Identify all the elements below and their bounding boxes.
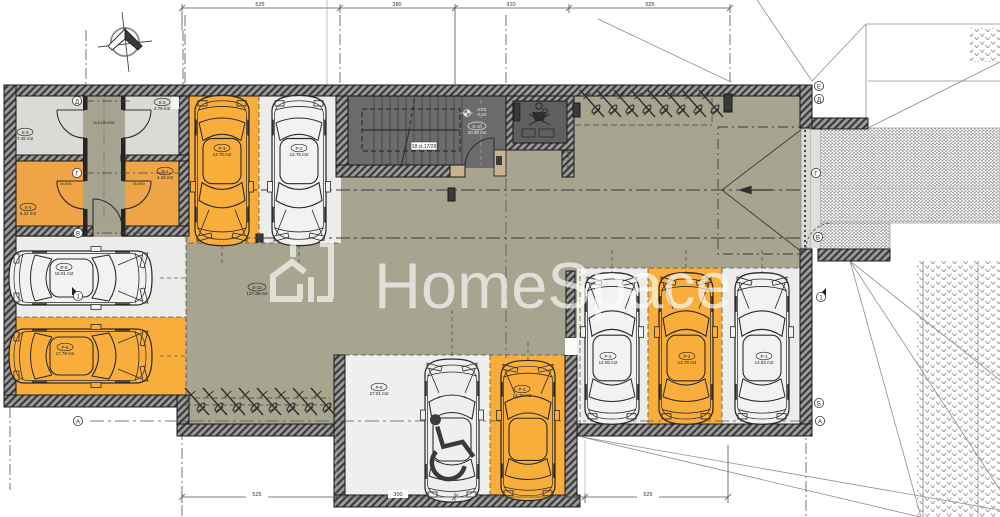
svg-text:310: 310 xyxy=(506,2,515,8)
svg-text:525: 525 xyxy=(255,2,264,8)
svg-text:P-1: P-1 xyxy=(760,354,768,359)
svg-text:P-8: P-8 xyxy=(375,385,383,390)
svg-text:525: 525 xyxy=(645,2,654,8)
svg-text:M-E90: M-E90 xyxy=(60,182,71,186)
svg-text:14.83 m2: 14.83 m2 xyxy=(755,360,774,365)
svg-text:Д: Д xyxy=(75,100,79,106)
svg-text:15.01 m2: 15.01 m2 xyxy=(55,271,74,276)
svg-text:P-6: P-6 xyxy=(60,265,68,270)
svg-text:P-2: P-2 xyxy=(604,354,612,359)
svg-text:13.75 m2: 13.75 m2 xyxy=(290,152,309,157)
svg-text:S-1: S-1 xyxy=(161,169,169,174)
svg-text:S-12: S-12 xyxy=(252,285,262,290)
svg-text:13.75 m2: 13.75 m2 xyxy=(213,152,232,157)
svg-text:S-4: S-4 xyxy=(24,205,32,210)
svg-text:14.79 m2: 14.79 m2 xyxy=(513,393,532,398)
svg-text:300: 300 xyxy=(393,492,402,498)
svg-text:4.79 m2: 4.79 m2 xyxy=(154,106,171,111)
svg-text:Е: Е xyxy=(817,85,821,91)
svg-text:20.98 m2: 20.98 m2 xyxy=(468,130,487,135)
svg-text:S-2: S-2 xyxy=(158,100,166,105)
svg-text:P-2: P-2 xyxy=(295,146,303,151)
svg-text:525: 525 xyxy=(643,492,652,498)
svg-text:380: 380 xyxy=(392,2,401,8)
svg-text:17.78 m2: 17.78 m2 xyxy=(56,351,75,356)
svg-text:525: 525 xyxy=(252,492,261,498)
svg-text:4.42 m2: 4.42 m2 xyxy=(157,175,174,180)
svg-text:M-E90: M-E90 xyxy=(133,182,144,186)
svg-text:P-5: P-5 xyxy=(61,345,69,350)
svg-text:7.45 m2: 7.45 m2 xyxy=(17,136,34,141)
svg-text:27.01 m2: 27.01 m2 xyxy=(370,391,389,396)
svg-text:Д: Д xyxy=(817,98,821,104)
svg-text:S-3: S-3 xyxy=(21,130,29,135)
svg-text:14.06 m2: 14.06 m2 xyxy=(599,360,618,365)
svg-text:P-3: P-3 xyxy=(218,146,226,151)
svg-text:M-E100-E90: M-E100-E90 xyxy=(93,121,114,125)
svg-text:P-2: P-2 xyxy=(683,354,691,359)
svg-text:P-4: P-4 xyxy=(518,387,526,392)
svg-text:6.31 m2: 6.31 m2 xyxy=(20,211,37,216)
svg-text:В: В xyxy=(816,236,820,242)
svg-text:Б: Б xyxy=(817,402,821,408)
svg-text:137.38 m2: 137.38 m2 xyxy=(246,291,268,296)
svg-text:А: А xyxy=(76,420,80,426)
svg-text:В: В xyxy=(76,232,80,238)
svg-text:13.78 m2: 13.78 m2 xyxy=(678,360,697,365)
svg-text:HomeSpace: HomeSpace xyxy=(374,249,732,322)
svg-text:А: А xyxy=(818,420,822,426)
svg-text:18 ct.17/29: 18 ct.17/29 xyxy=(412,144,437,150)
